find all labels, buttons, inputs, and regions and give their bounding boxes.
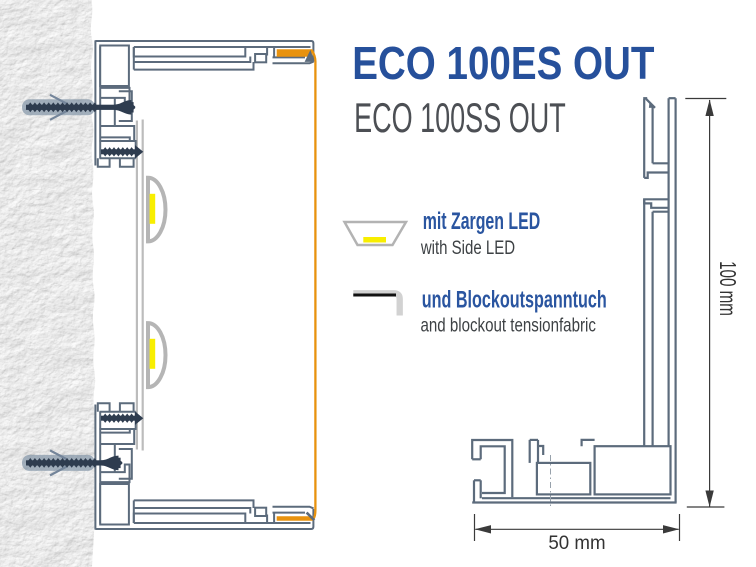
svg-text:50 mm: 50 mm <box>548 533 605 554</box>
svg-text:mit Zargen LED: mit Zargen LED <box>423 209 540 235</box>
svg-text:ECO 100SS OUT: ECO 100SS OUT <box>354 95 566 141</box>
svg-text:und Blockoutspanntuch: und Blockoutspanntuch <box>422 286 607 313</box>
svg-text:and blockout tensionfabric: and blockout tensionfabric <box>420 314 596 336</box>
svg-text:with Side LED: with Side LED <box>420 238 515 259</box>
svg-text:ECO 100ES OUT: ECO 100ES OUT <box>352 38 654 89</box>
svg-text:100 mm: 100 mm <box>714 261 740 316</box>
